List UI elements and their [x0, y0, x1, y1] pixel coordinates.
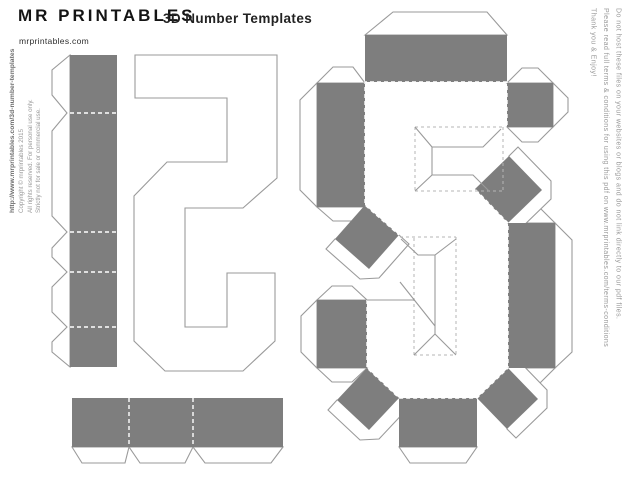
back-face-mirrored-5: [134, 55, 277, 371]
inner-notch-lower: [400, 237, 456, 355]
template-page: MR PRINTABLES mrprintables.com 3D Number…: [0, 0, 625, 483]
fold-flap: [52, 55, 70, 367]
glue-strip: [70, 55, 117, 367]
fold-flap: [72, 447, 283, 463]
side-strip-bottom: [72, 398, 283, 463]
cut-outline: [134, 55, 277, 371]
glue-strip: [72, 398, 283, 447]
template-canvas: [0, 0, 625, 483]
glue-tabs: [317, 35, 555, 447]
side-strip-left: [52, 55, 117, 367]
front-face-5-with-tabs: [300, 12, 572, 463]
